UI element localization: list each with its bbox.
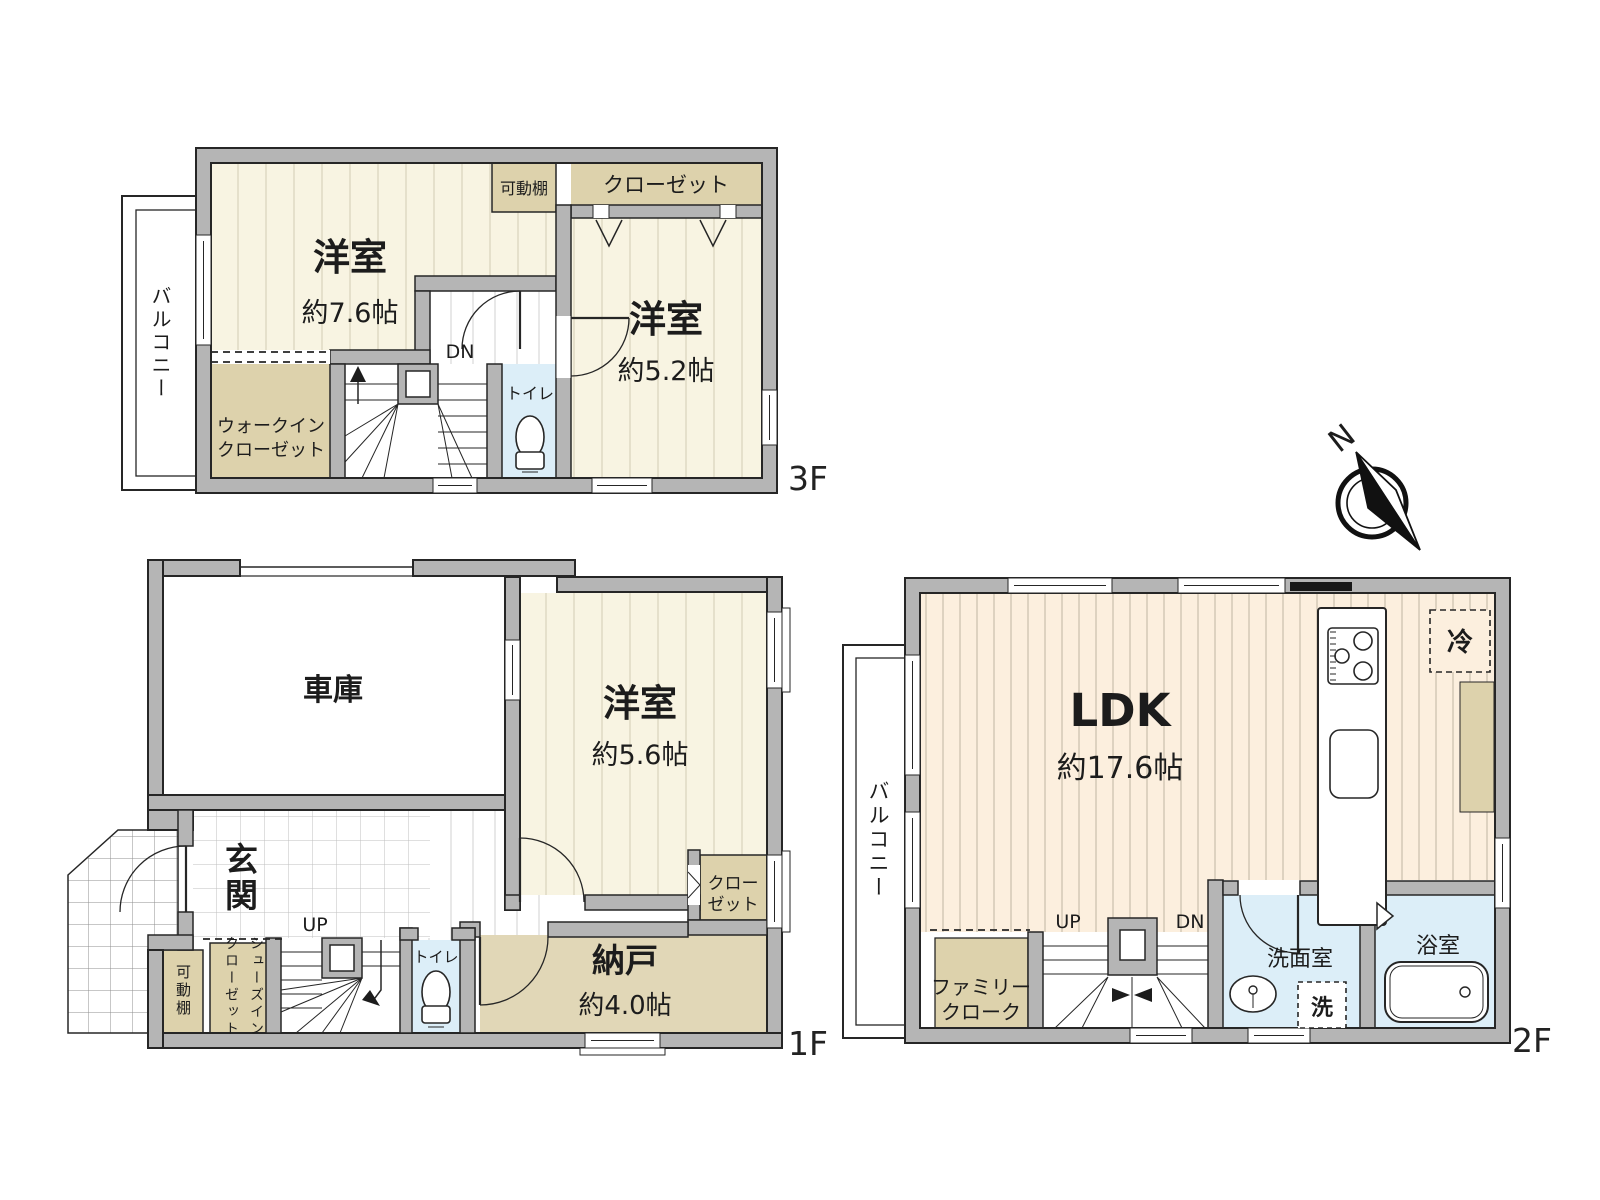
balcony-2f-label: バルコニー <box>866 780 890 900</box>
entrance-label: 玄関 <box>220 842 259 914</box>
ldk-name: LDK <box>1070 684 1173 737</box>
window-3f-bottom-1 <box>433 478 477 493</box>
floor-plan-canvas: バルコニー <box>0 0 1600 1200</box>
storage-name: 納戸 <box>592 941 658 980</box>
closet-1f-label-1: クロー <box>708 874 759 894</box>
ldk-size: 約17.6帖 <box>1057 751 1184 786</box>
family-cloak-label-1: ファミリー <box>931 975 1031 999</box>
washbasin-icon <box>1230 976 1276 1012</box>
toilet-icon-1f <box>422 971 450 1027</box>
room-5-6-size: 約5.6帖 <box>592 740 689 771</box>
window-2f-top-2 <box>1178 578 1285 593</box>
laundry-label: 洗 <box>1311 996 1333 1021</box>
window-2f-right <box>1495 838 1510 908</box>
wic-label-2: クローゼット <box>217 440 325 461</box>
window-2f-left-1 <box>905 655 920 775</box>
toilet-icon-3f <box>516 416 544 472</box>
window-2f-left-2 <box>905 812 920 908</box>
window-1f-right-1 <box>767 608 790 692</box>
washroom-label: 洗面室 <box>1267 947 1333 972</box>
balcony-2f: バルコニー <box>843 645 905 1038</box>
kitchen-cabinet <box>1460 682 1494 812</box>
window-1f-right-2 <box>767 851 790 932</box>
floor-label-1f: 1F <box>788 1024 828 1063</box>
vent-bar <box>1290 582 1352 591</box>
bathroom-label: 浴室 <box>1416 934 1460 959</box>
family-cloak-label-2: クローク <box>941 1000 1021 1024</box>
movable-shelf-1f-label: 可動棚 <box>174 964 192 1018</box>
window-3f-left <box>196 235 211 345</box>
room-western-5-2 <box>571 218 762 478</box>
room-7-6-name: 洋室 <box>313 236 387 279</box>
room-5-6-name: 洋室 <box>603 682 677 725</box>
compass-icon: N <box>1322 417 1420 550</box>
sic-label-1: シューズイン <box>248 936 264 1038</box>
bathtub-icon <box>1385 962 1488 1022</box>
storage-size: 約4.0帖 <box>578 991 671 1021</box>
fridge-space: 冷 <box>1430 610 1490 672</box>
kitchen-counter <box>1318 608 1386 925</box>
dn-label-3f: DN <box>446 341 475 363</box>
toilet-3f-label: トイレ <box>506 384 554 403</box>
wic-label-1: ウォークイン <box>217 416 325 437</box>
room-7-6-size: 約7.6帖 <box>302 298 399 329</box>
balcony-3f: バルコニー <box>122 196 196 490</box>
window-1f-bottom <box>580 1033 665 1055</box>
closet-1f-label-2: ゼット <box>708 895 759 915</box>
window-2f-bottom-1 <box>1130 1028 1192 1043</box>
floor-plan-3f: バルコニー <box>122 148 828 498</box>
up-label-2f: UP <box>1055 911 1080 933</box>
window-3f-right <box>762 390 777 445</box>
room-5-2-name: 洋室 <box>629 298 703 341</box>
stove-icon <box>1328 628 1378 684</box>
toilet-1f-label: トイレ <box>413 948 458 966</box>
up-label-1f: UP <box>302 914 327 936</box>
room-5-2-size: 約5.2帖 <box>618 356 715 387</box>
window-2f-top-1 <box>1008 578 1112 593</box>
sink-icon <box>1330 730 1378 798</box>
floor-label-3f: 3F <box>788 459 828 498</box>
floor-label-2f: 2F <box>1512 1021 1552 1060</box>
floor-plan-1f: 車庫 洋室 約5.6帖 クロー ゼット 納戸 約4.0帖 玄関 UP トイレ 可… <box>68 560 828 1063</box>
closet-3f-label: クローゼット <box>603 173 729 197</box>
fridge-label: 冷 <box>1447 627 1473 658</box>
balcony-3f-label: バルコニー <box>148 286 172 401</box>
sic-label-2: クローゼット <box>223 936 239 1038</box>
window-1f-divider <box>505 640 520 700</box>
garage-label: 車庫 <box>303 673 363 708</box>
floor-plan-2f: バルコニー <box>843 578 1552 1060</box>
window-3f-bottom-2 <box>592 478 652 493</box>
window-2f-bottom-2 <box>1248 1028 1310 1043</box>
dn-label-2f: DN <box>1176 911 1205 933</box>
movable-shelf-3f-label: 可動棚 <box>500 179 548 198</box>
laundry-space: 洗 <box>1298 982 1346 1028</box>
